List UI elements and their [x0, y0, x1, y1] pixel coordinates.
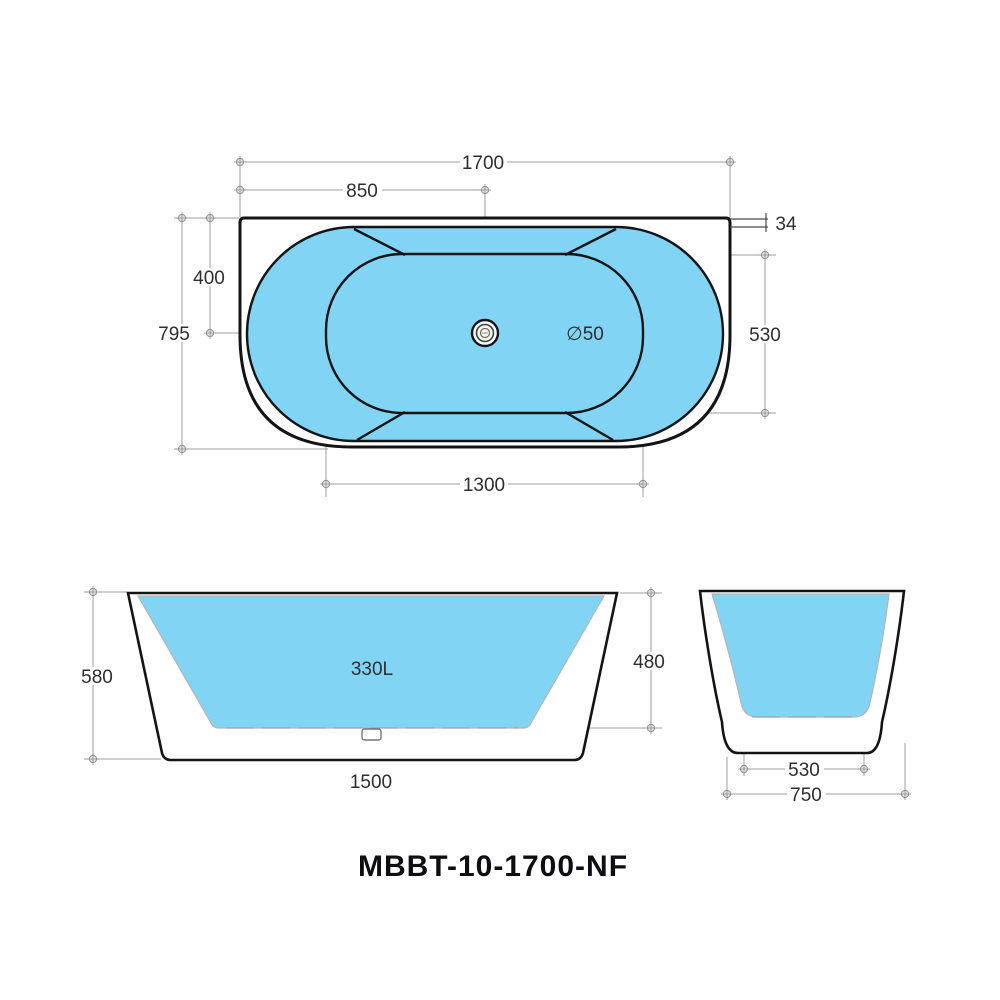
dim-inner-depth: 480 [630, 587, 669, 734]
dim-label-1300: 1300 [463, 475, 505, 496]
dim-label-drain-diameter: ∅50 [566, 324, 604, 345]
front-view: 330L 580 480 1500 [78, 586, 669, 793]
dim-rim-back: 34 [730, 213, 797, 235]
dim-center-offset: 850 [234, 181, 491, 202]
dim-label-480: 480 [633, 652, 665, 673]
plan-view: 1700 850 34 795 400 [155, 153, 797, 497]
dim-overall-width: 795 [155, 212, 194, 455]
dim-label-400: 400 [193, 268, 225, 289]
side-view: 530 750 [700, 591, 911, 806]
drain-icon [472, 320, 498, 346]
model-number: MBBT-10-1700-NF [358, 850, 628, 883]
bathtub-dimension-diagram: 1700 850 34 795 400 [0, 0, 1000, 1000]
dim-label-750: 750 [790, 785, 822, 806]
dim-label-530-plan: 530 [749, 325, 781, 346]
front-drain-outlet [362, 729, 381, 740]
dim-label-850: 850 [346, 181, 378, 202]
dim-overall-length: 1700 [234, 153, 736, 174]
dim-label-530-side: 530 [788, 760, 820, 781]
capacity-label: 330L [351, 659, 393, 680]
technical-drawing: 1700 850 34 795 400 [0, 0, 1000, 1000]
dim-label-1500: 1500 [350, 772, 392, 793]
dim-label-795: 795 [158, 324, 190, 345]
dim-overall-height: 580 [78, 586, 117, 765]
dim-inner-length: 1300 [320, 475, 649, 496]
dim-label-580: 580 [81, 667, 113, 688]
dim-label-34: 34 [775, 214, 797, 235]
dim-inner-base-width: 530 [738, 760, 870, 781]
dim-label-1700: 1700 [462, 153, 504, 174]
dim-base-width: 750 [721, 785, 911, 806]
